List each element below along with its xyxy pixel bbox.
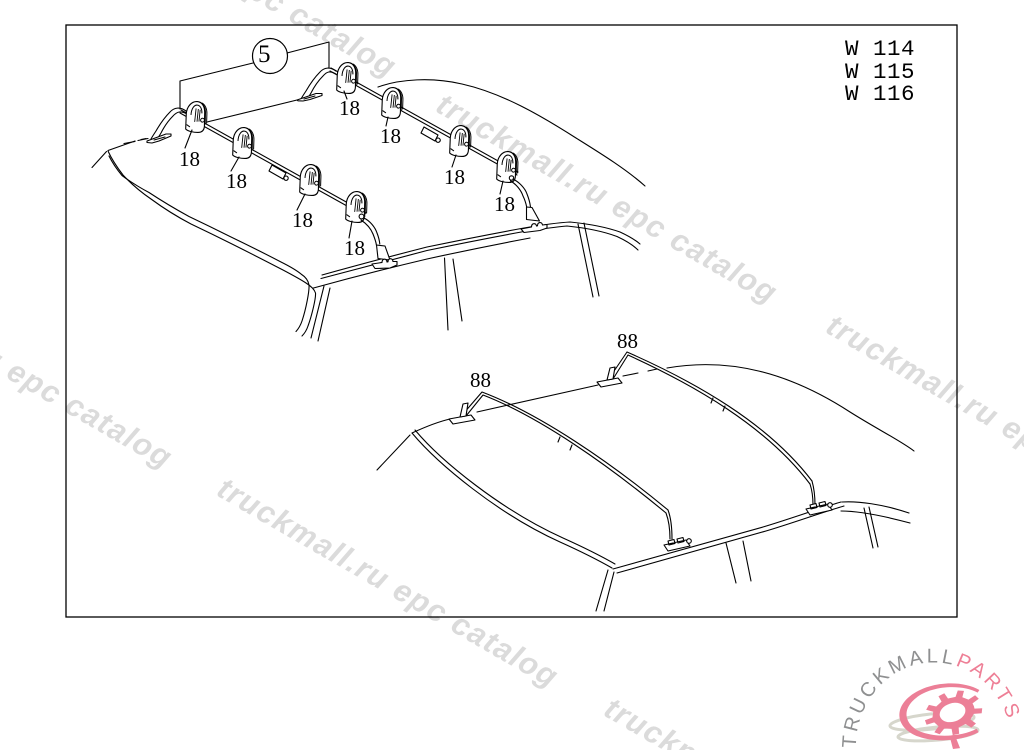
svg-text:18: 18 <box>226 169 247 193</box>
svg-text:18: 18 <box>444 165 465 189</box>
svg-text:18: 18 <box>292 208 313 232</box>
svg-text:88: 88 <box>617 329 638 353</box>
svg-text:18: 18 <box>339 96 360 120</box>
svg-text:18: 18 <box>344 236 365 260</box>
svg-text:5: 5 <box>258 41 271 68</box>
svg-text:18: 18 <box>179 147 200 171</box>
svg-text:18: 18 <box>380 124 401 148</box>
svg-text:88: 88 <box>470 368 491 392</box>
svg-text:W 116: W 116 <box>845 81 915 107</box>
svg-text:18: 18 <box>494 192 515 216</box>
